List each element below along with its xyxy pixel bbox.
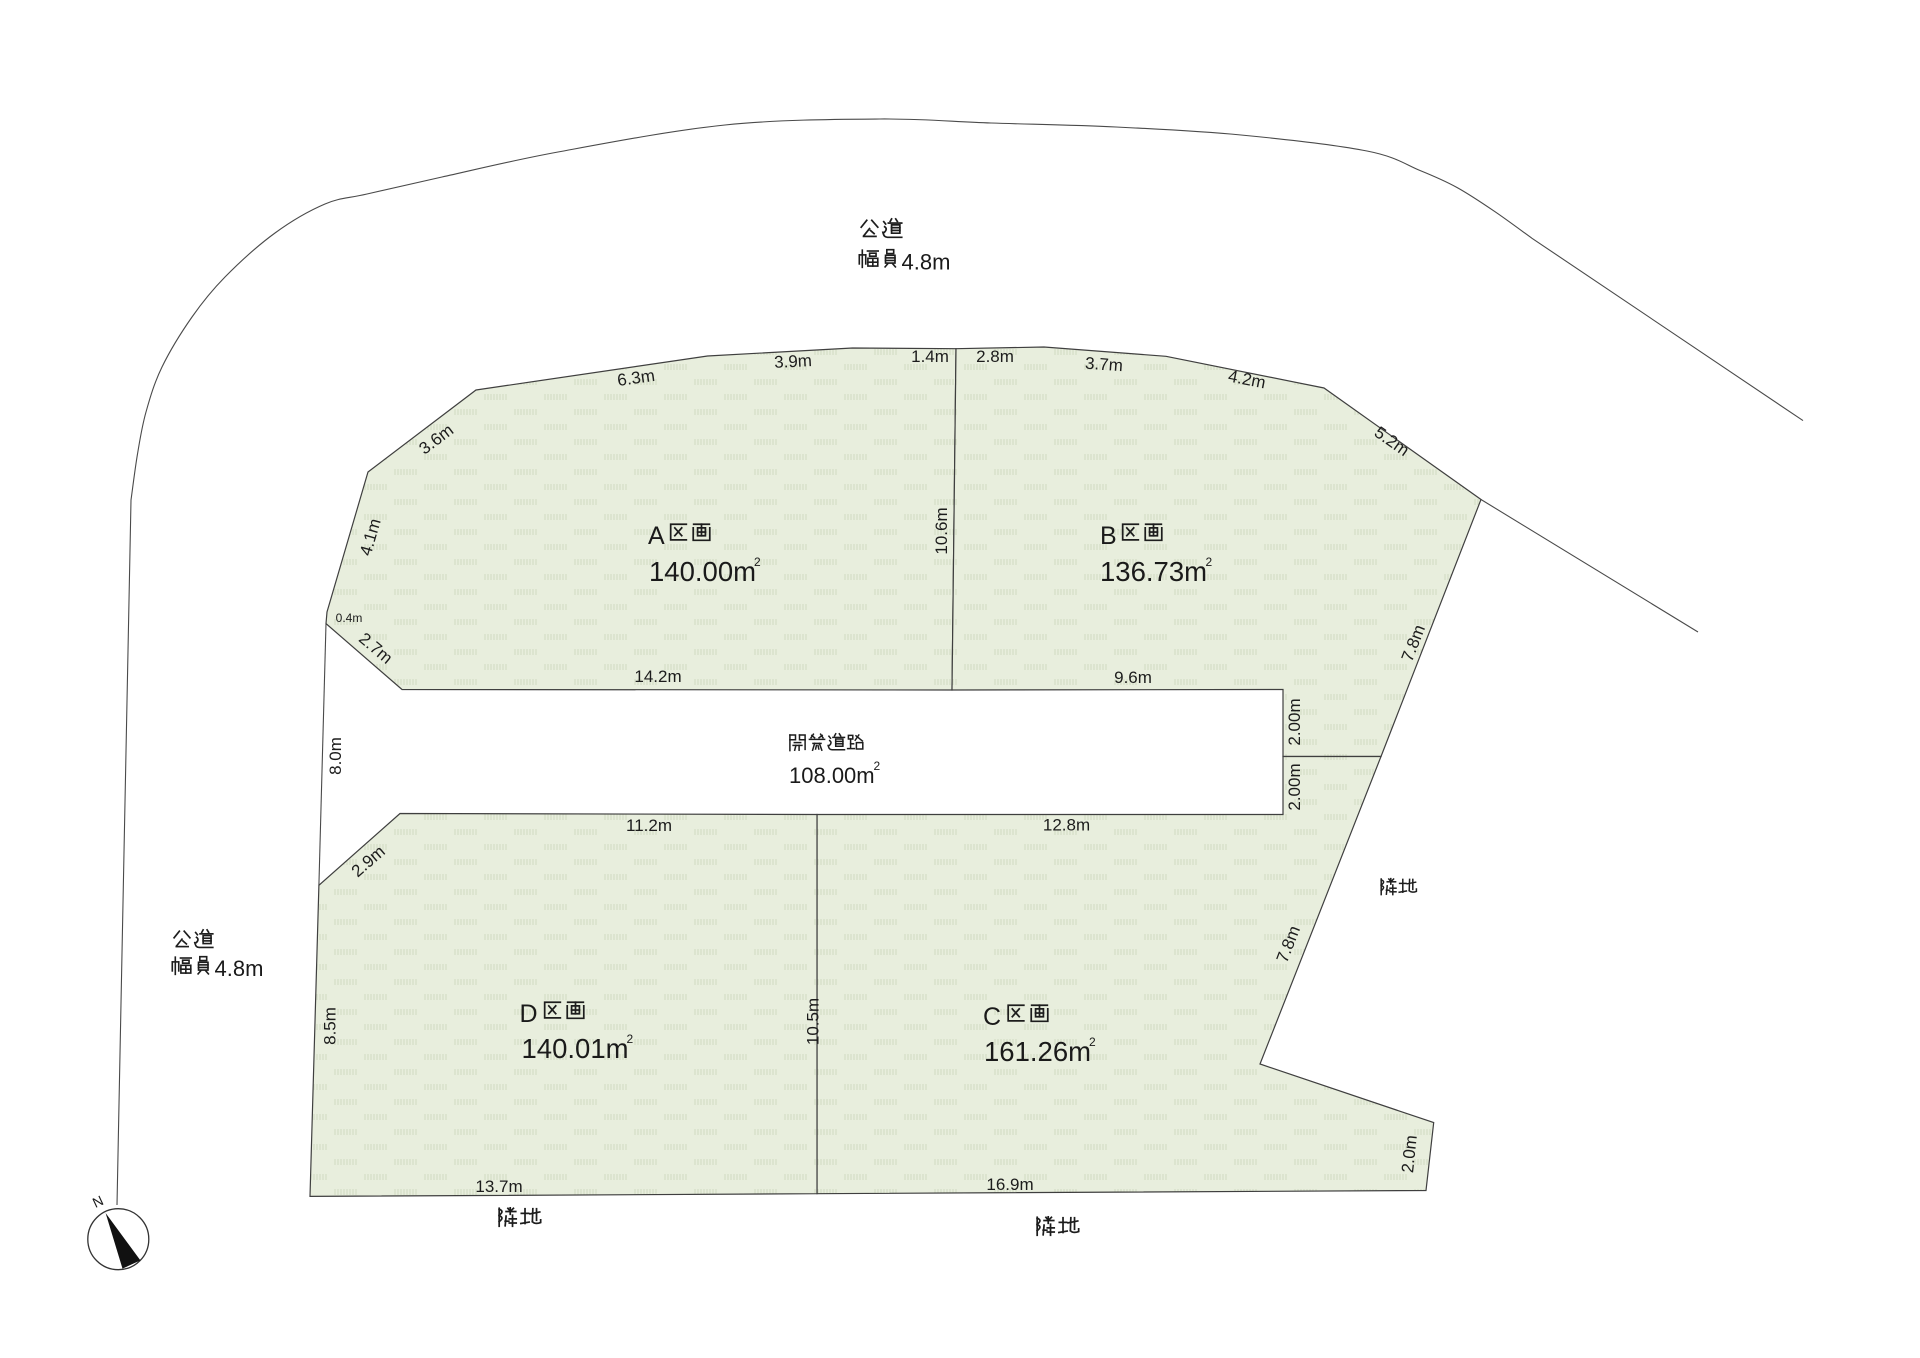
svg-text:108.00m: 108.00m [789, 763, 875, 788]
svg-text:10.6m: 10.6m [932, 507, 951, 554]
svg-text:3.7m: 3.7m [1084, 354, 1123, 376]
svg-text:2: 2 [874, 759, 881, 773]
svg-text:14.2m: 14.2m [634, 667, 681, 686]
svg-text:2: 2 [1206, 555, 1213, 569]
svg-text:2.0m: 2.0m [1398, 1134, 1421, 1174]
svg-text:2.00m: 2.00m [1285, 763, 1304, 810]
svg-text:4.8m: 4.8m [902, 250, 951, 275]
svg-text:9.6m: 9.6m [1114, 668, 1152, 687]
svg-text:136.73m: 136.73m [1100, 556, 1207, 587]
svg-text:2: 2 [1089, 1035, 1096, 1049]
svg-text:2.00m: 2.00m [1285, 698, 1304, 745]
svg-text:3.9m: 3.9m [774, 351, 813, 372]
svg-text:11.2m: 11.2m [626, 816, 672, 835]
svg-text:2: 2 [754, 555, 761, 569]
svg-text:0.4m: 0.4m [336, 611, 363, 625]
svg-text:2.8m: 2.8m [976, 347, 1014, 366]
svg-text:12.8m: 12.8m [1043, 815, 1090, 834]
svg-text:13.7m: 13.7m [475, 1177, 522, 1196]
svg-text:140.00m: 140.00m [649, 556, 756, 587]
svg-text:A: A [648, 522, 665, 550]
svg-text:8.5m: 8.5m [320, 1007, 339, 1045]
svg-text:16.9m: 16.9m [986, 1175, 1033, 1194]
svg-text:8.0m: 8.0m [326, 737, 345, 775]
svg-text:10.5m: 10.5m [803, 998, 822, 1045]
svg-text:C: C [983, 1003, 1001, 1031]
svg-text:4.8m: 4.8m [215, 956, 264, 981]
svg-text:B: B [1100, 522, 1117, 550]
svg-text:D: D [520, 1000, 538, 1028]
svg-text:140.01m: 140.01m [522, 1033, 629, 1064]
svg-text:1.4m: 1.4m [911, 347, 949, 366]
svg-text:161.26m: 161.26m [984, 1036, 1091, 1067]
svg-text:2: 2 [627, 1032, 634, 1046]
